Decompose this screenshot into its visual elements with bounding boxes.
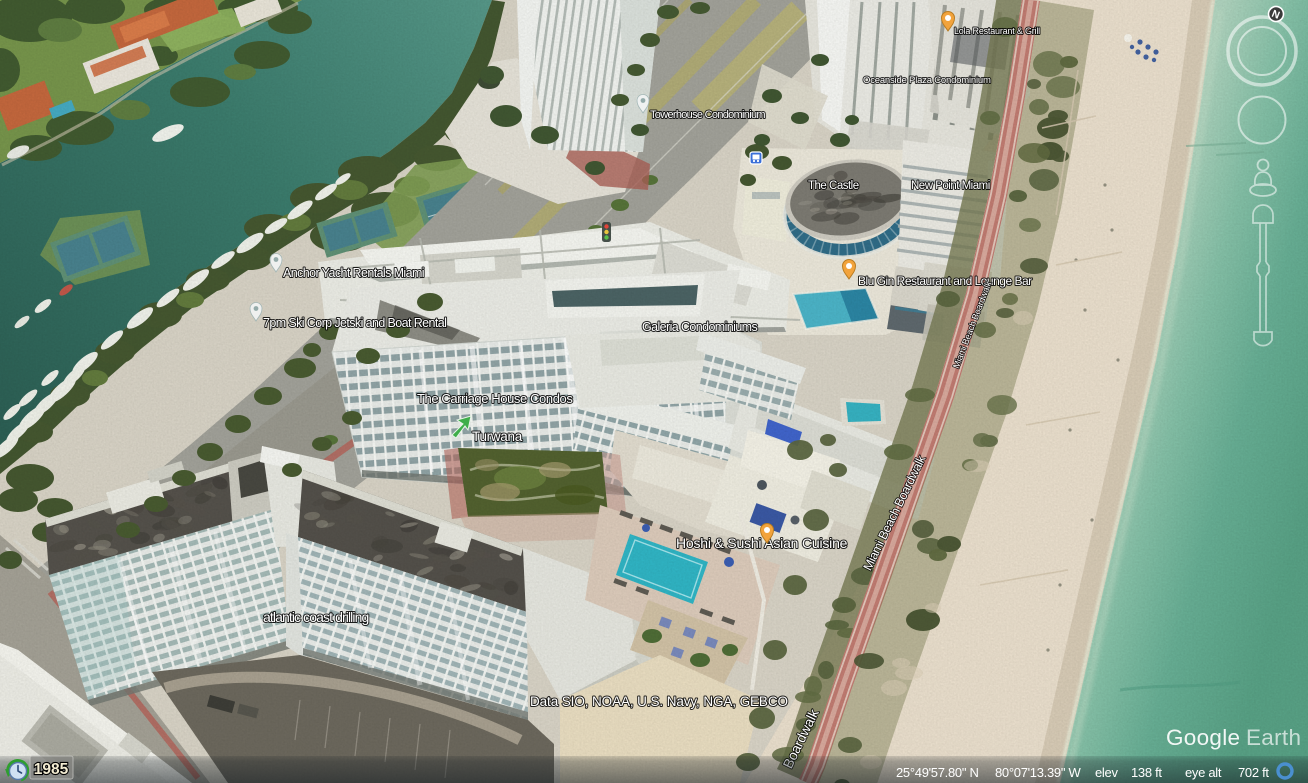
svg-text:The Carriage House Condos: The Carriage House Condos xyxy=(417,391,573,406)
svg-text:Towerhouse Condominium: Towerhouse Condominium xyxy=(650,109,765,121)
svg-text:7pm Ski Corp Jetski and Boat R: 7pm Ski Corp Jetski and Boat Rental xyxy=(263,316,446,330)
svg-text:Google: Google xyxy=(1166,725,1240,750)
svg-text:80°07'13.39" W: 80°07'13.39" W xyxy=(995,765,1081,780)
svg-text:The Castle: The Castle xyxy=(808,180,859,192)
svg-text:New Point Miami: New Point Miami xyxy=(911,180,990,192)
svg-text:Blu Gin Restaurant and Lounge: Blu Gin Restaurant and Lounge Bar xyxy=(858,274,1032,288)
svg-text:atlantic coast drilling: atlantic coast drilling xyxy=(263,609,368,625)
svg-text:25°49'57.80" N: 25°49'57.80" N xyxy=(896,765,979,780)
svg-text:702 ft: 702 ft xyxy=(1238,765,1269,780)
svg-text:Turwana: Turwana xyxy=(472,429,523,444)
svg-text:eye alt: eye alt xyxy=(1185,765,1222,780)
svg-text:Data SIO, NOAA, U.S. Navy, NGA: Data SIO, NOAA, U.S. Navy, NGA, GEBCO xyxy=(530,694,788,709)
svg-text:138 ft: 138 ft xyxy=(1131,765,1162,780)
svg-text:Hoshi & Sushi Asian Cuisine: Hoshi & Sushi Asian Cuisine xyxy=(676,535,848,551)
svg-text:elev: elev xyxy=(1095,765,1118,780)
svg-text:Lola Restaurant & Grill: Lola Restaurant & Grill xyxy=(954,26,1040,36)
svg-text:Galeria Condominiums: Galeria Condominiums xyxy=(642,320,757,334)
svg-text:Oceanside Plaza Condominium: Oceanside Plaza Condominium xyxy=(863,75,991,86)
svg-text:Anchor Yacht Rentals Miami: Anchor Yacht Rentals Miami xyxy=(283,266,424,280)
svg-text:1985: 1985 xyxy=(34,761,69,778)
svg-text:Earth: Earth xyxy=(1246,725,1301,750)
